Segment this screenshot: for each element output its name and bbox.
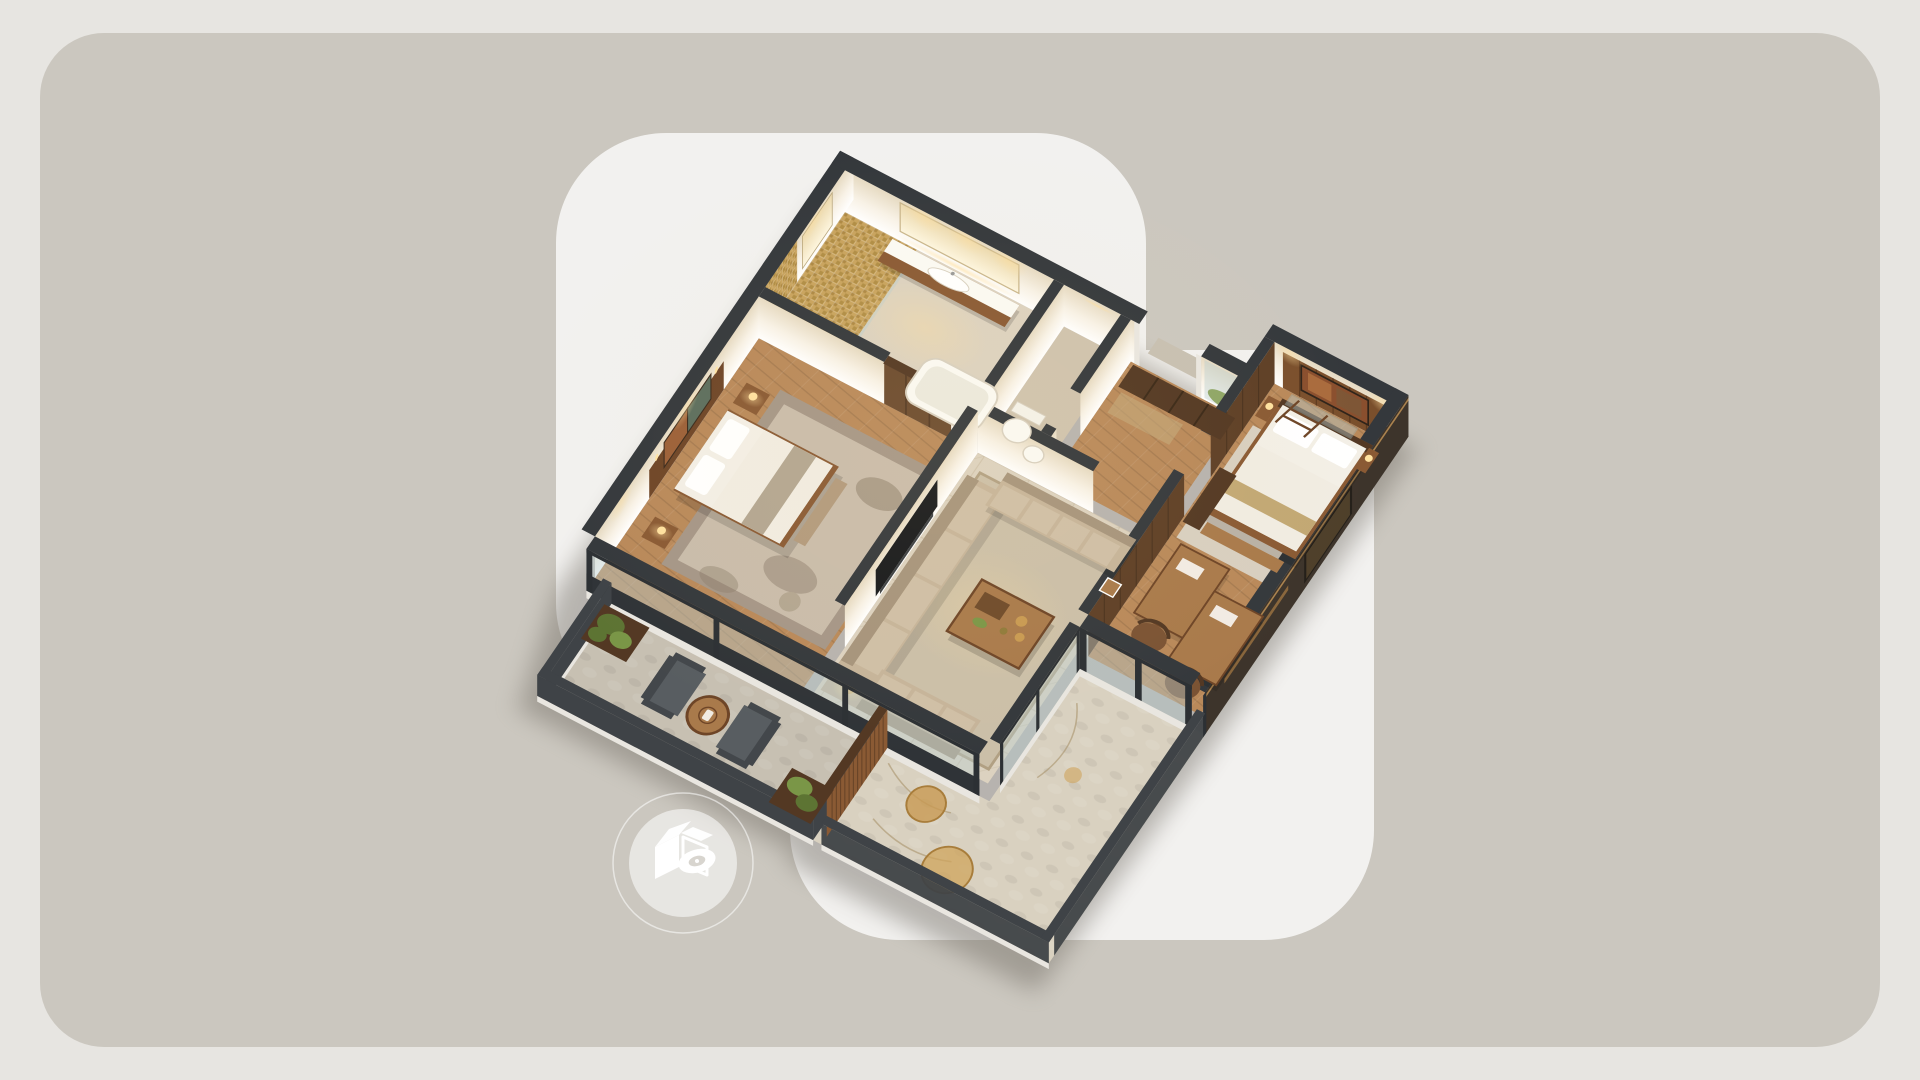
- ambient-light-overlay: [515, 140, 1375, 760]
- 3d-view-badge[interactable]: [613, 793, 753, 933]
- floorplan-render-canvas: [0, 0, 1920, 1080]
